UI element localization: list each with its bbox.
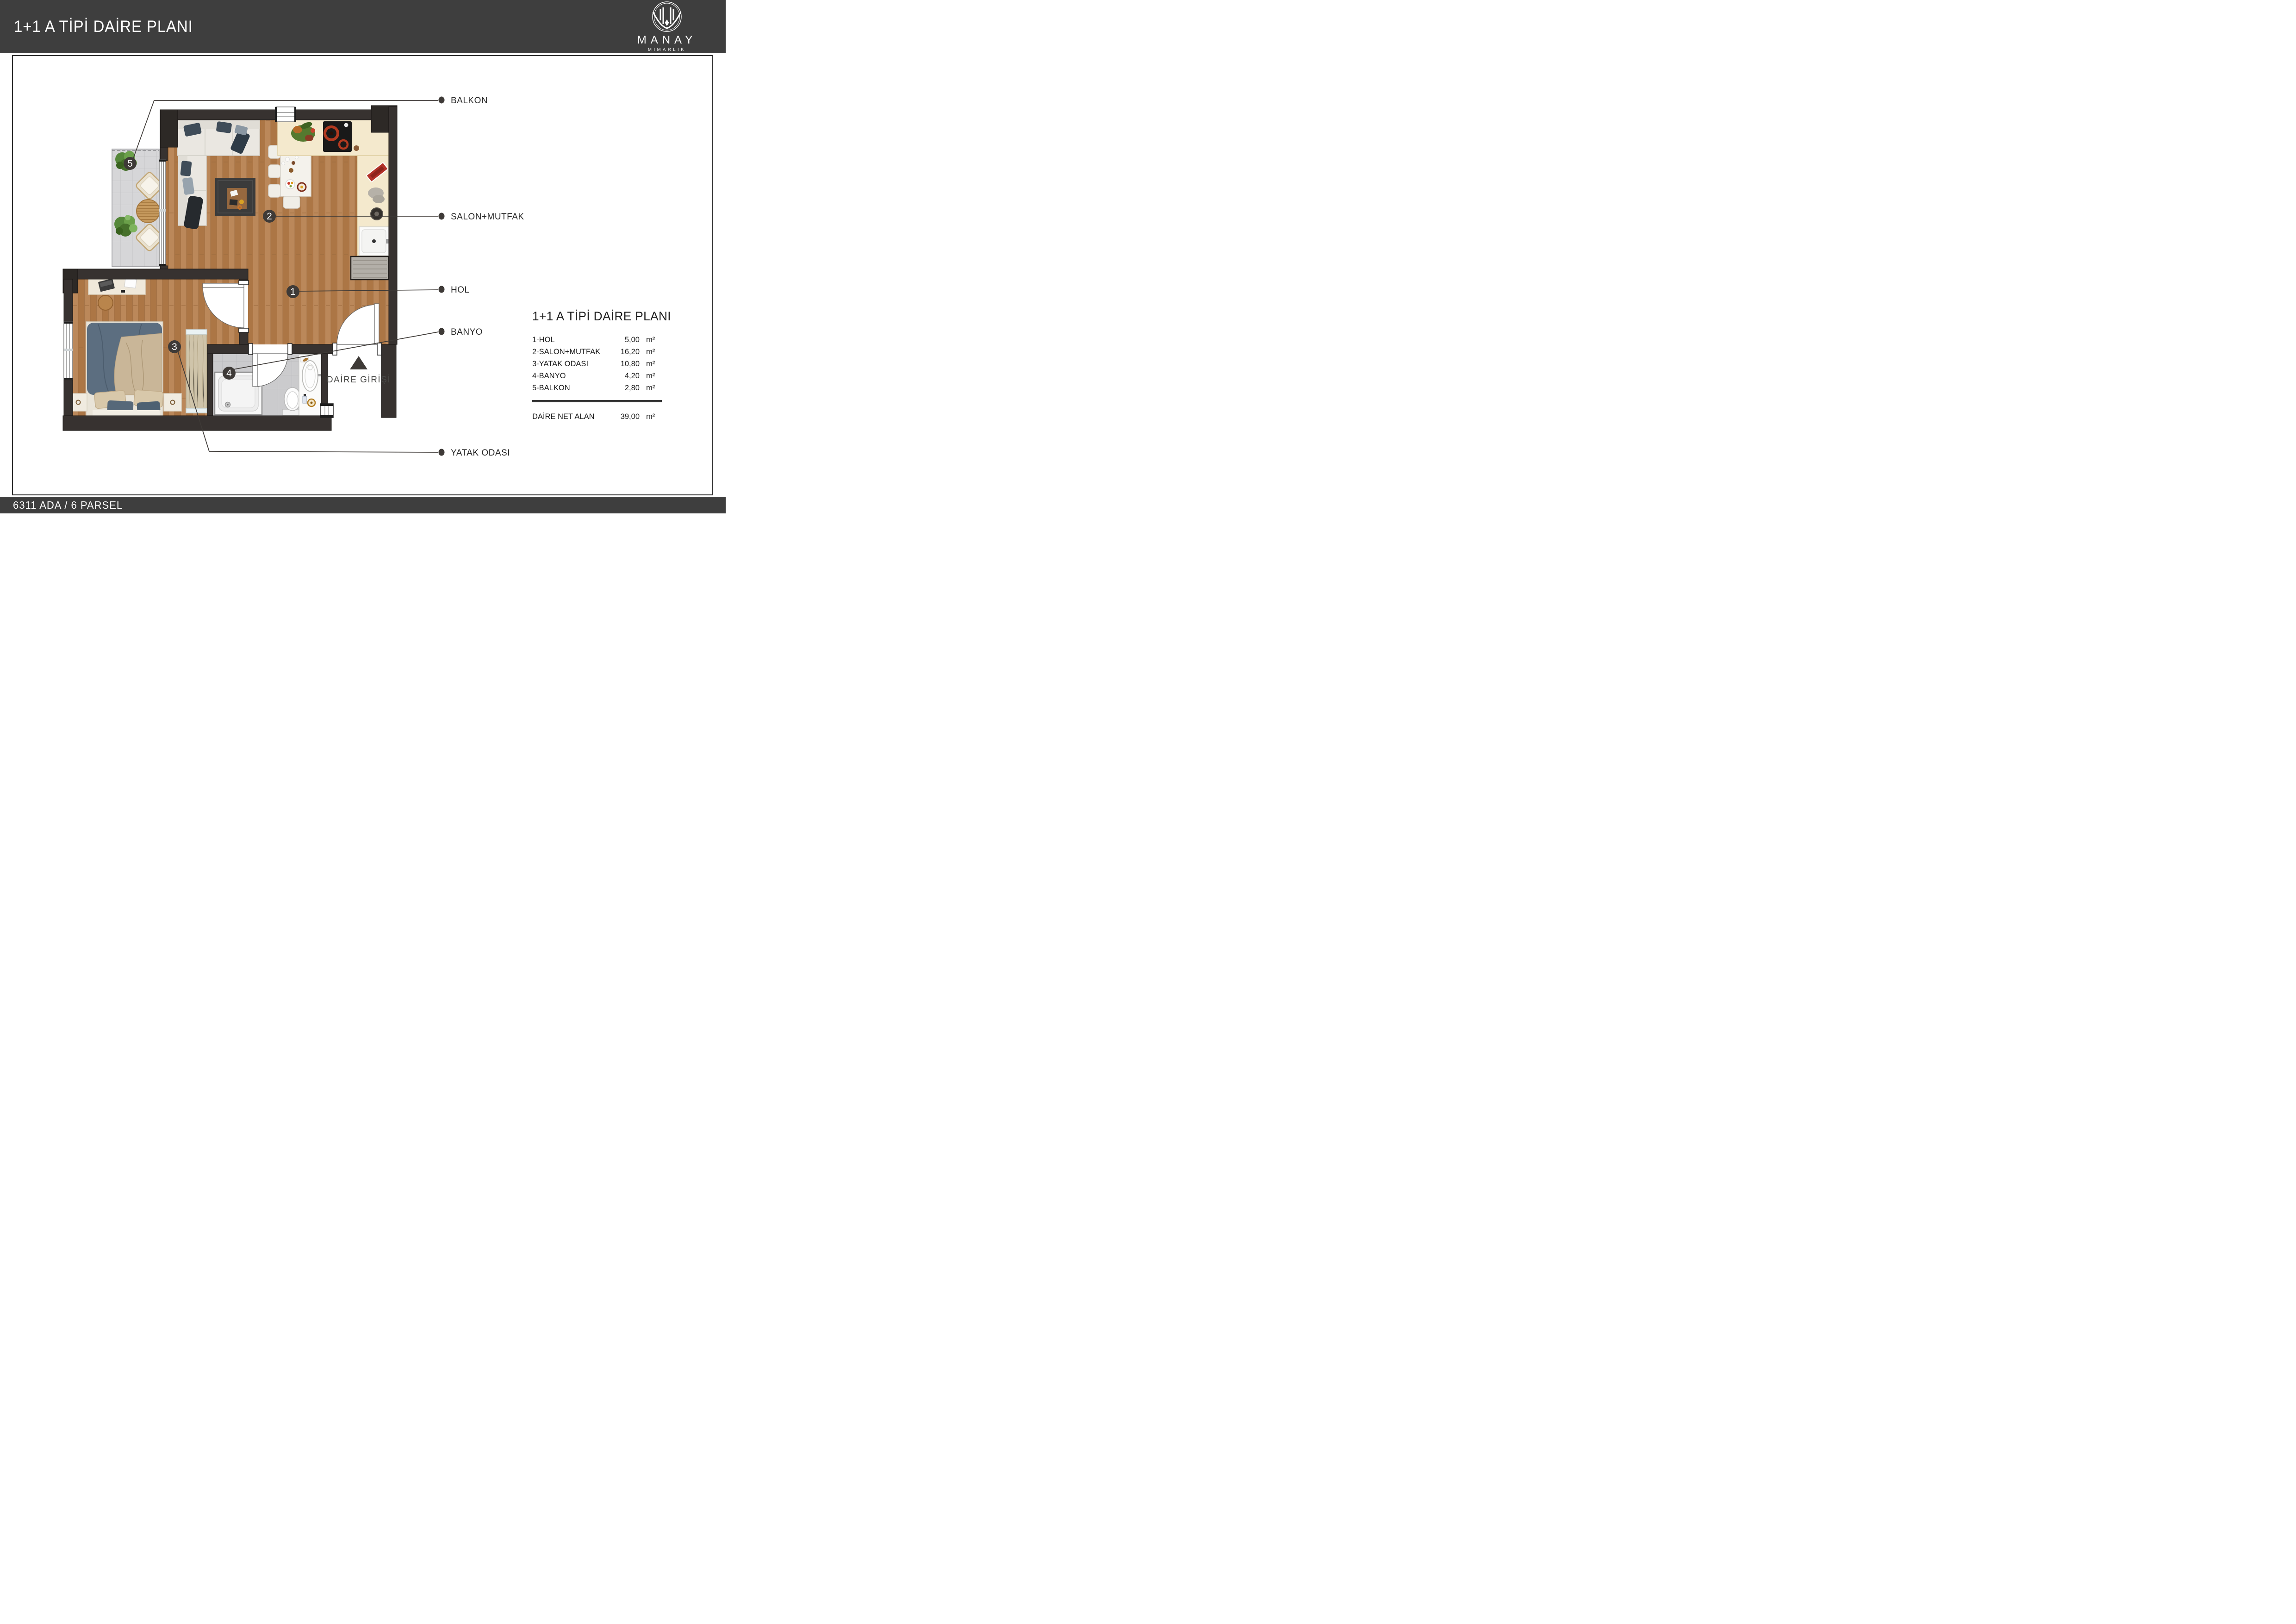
legend-row: 5-BALKON 2,80 m²	[532, 382, 662, 394]
legend-room-unit: m²	[646, 358, 662, 370]
legend-room-name: 3-YATAK ODASI	[532, 358, 617, 370]
legend-room-name: 1-HOL	[532, 334, 617, 346]
net-area-label: DAİRE NET ALAN	[532, 411, 617, 423]
room-marker-balkon: 5	[124, 157, 137, 170]
room-marker-yatak: 3	[168, 340, 181, 353]
room-marker-hol: 1	[286, 285, 299, 298]
floor-plan-sheet: 1+1 A TİPİ DAİRE PLANI MANAY MIMARLIK	[0, 0, 726, 513]
area-legend: 1+1 A TİPİ DAİRE PLANI 1-HOL 5,00 m² 2-S…	[532, 309, 662, 423]
callout-balkon: BALKON	[451, 96, 488, 106]
legend-room-area: 2,80	[617, 382, 646, 394]
fruit-plate	[286, 180, 295, 189]
papers	[124, 278, 137, 288]
svg-text:2: 2	[267, 211, 272, 222]
legend-row: 4-BANYO 4,20 m²	[532, 370, 662, 382]
bathroom-sink	[299, 355, 322, 416]
dining-chair	[268, 184, 280, 197]
callout-bullets	[439, 97, 445, 456]
legend-room-area: 16,20	[617, 346, 646, 358]
legend-net-row: DAİRE NET ALAN 39,00 m²	[532, 411, 662, 423]
legend-room-area: 4,20	[617, 370, 646, 382]
callout-yatak-odasi: YATAK ODASI	[451, 448, 510, 458]
floor-plan: DAİRE GİRİŞİ 1 2 3 4	[0, 0, 726, 513]
bed	[86, 322, 163, 417]
svg-text:1: 1	[290, 287, 296, 297]
legend-room-name: 4-BANYO	[532, 370, 617, 382]
cooktop	[323, 121, 352, 152]
window	[275, 107, 296, 122]
shaft-opening	[320, 404, 333, 418]
legend-room-name: 2-SALON+MUTFAK	[532, 346, 617, 358]
callout-banyo: BANYO	[451, 327, 483, 337]
legend-room-name: 5-BALKON	[532, 382, 617, 394]
legend-room-area: 10,80	[617, 358, 646, 370]
legend-room-unit: m²	[646, 382, 662, 394]
egg-plate	[298, 183, 306, 191]
room-marker-banyo: 4	[223, 367, 236, 380]
nightstand	[164, 394, 181, 411]
svg-text:5: 5	[127, 158, 133, 169]
entrance-label: DAİRE GİRİŞİ	[327, 375, 391, 385]
svg-text:4: 4	[226, 368, 232, 379]
legend-divider	[532, 400, 662, 402]
callout-hol: HOL	[451, 285, 470, 295]
callout-salon-mutfak: SALON+MUTFAK	[451, 212, 524, 222]
wardrobe	[186, 330, 207, 413]
net-area-unit: m²	[646, 411, 662, 423]
window	[64, 322, 73, 380]
kitchen-sink	[359, 227, 390, 256]
dining-chair	[283, 196, 300, 208]
legend-row: 2-SALON+MUTFAK 16,20 m²	[532, 346, 662, 358]
window	[159, 160, 166, 266]
rug	[215, 178, 255, 216]
bowl	[354, 145, 359, 151]
svg-text:3: 3	[172, 342, 177, 352]
shaft-box	[351, 256, 389, 280]
footer-bar: 6311 ADA / 6 PARSEL	[0, 497, 726, 513]
legend-title: 1+1 A TİPİ DAİRE PLANI	[532, 309, 658, 324]
parcel-info: 6311 ADA / 6 PARSEL	[13, 497, 123, 513]
stool	[98, 295, 113, 310]
net-area-value: 39,00	[617, 411, 646, 423]
entrance-arrow	[350, 356, 367, 369]
legend-room-unit: m²	[646, 370, 662, 382]
legend-room-area: 5,00	[617, 334, 646, 346]
room-marker-salon: 2	[263, 210, 276, 223]
legend-room-unit: m²	[646, 334, 662, 346]
blanket	[114, 333, 162, 395]
legend-row: 1-HOL 5,00 m²	[532, 334, 662, 346]
dining-chair	[268, 165, 280, 178]
legend-row: 3-YATAK ODASI 10,80 m²	[532, 358, 662, 370]
legend-room-unit: m²	[646, 346, 662, 358]
balcony-table	[137, 200, 160, 223]
